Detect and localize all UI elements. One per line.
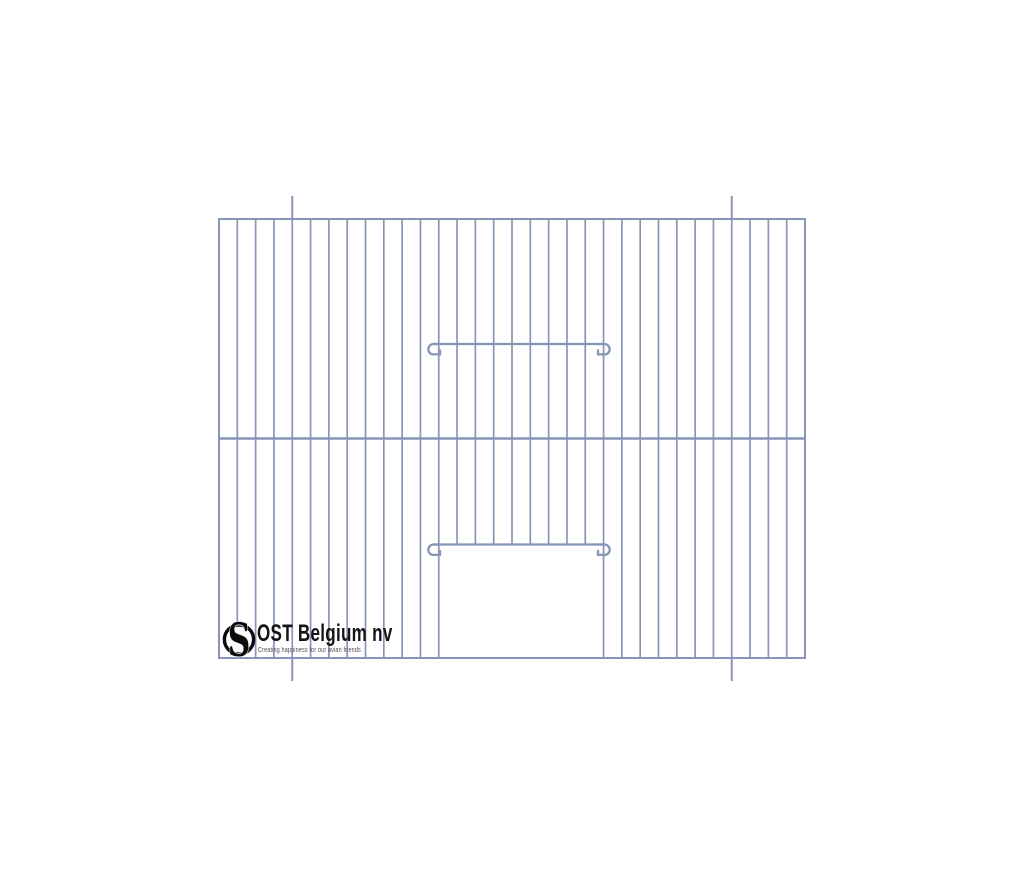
product-image-canvas: S OST Belgium nv Creating happiness for …	[0, 0, 1024, 878]
cage-front-drawing	[0, 0, 1024, 878]
